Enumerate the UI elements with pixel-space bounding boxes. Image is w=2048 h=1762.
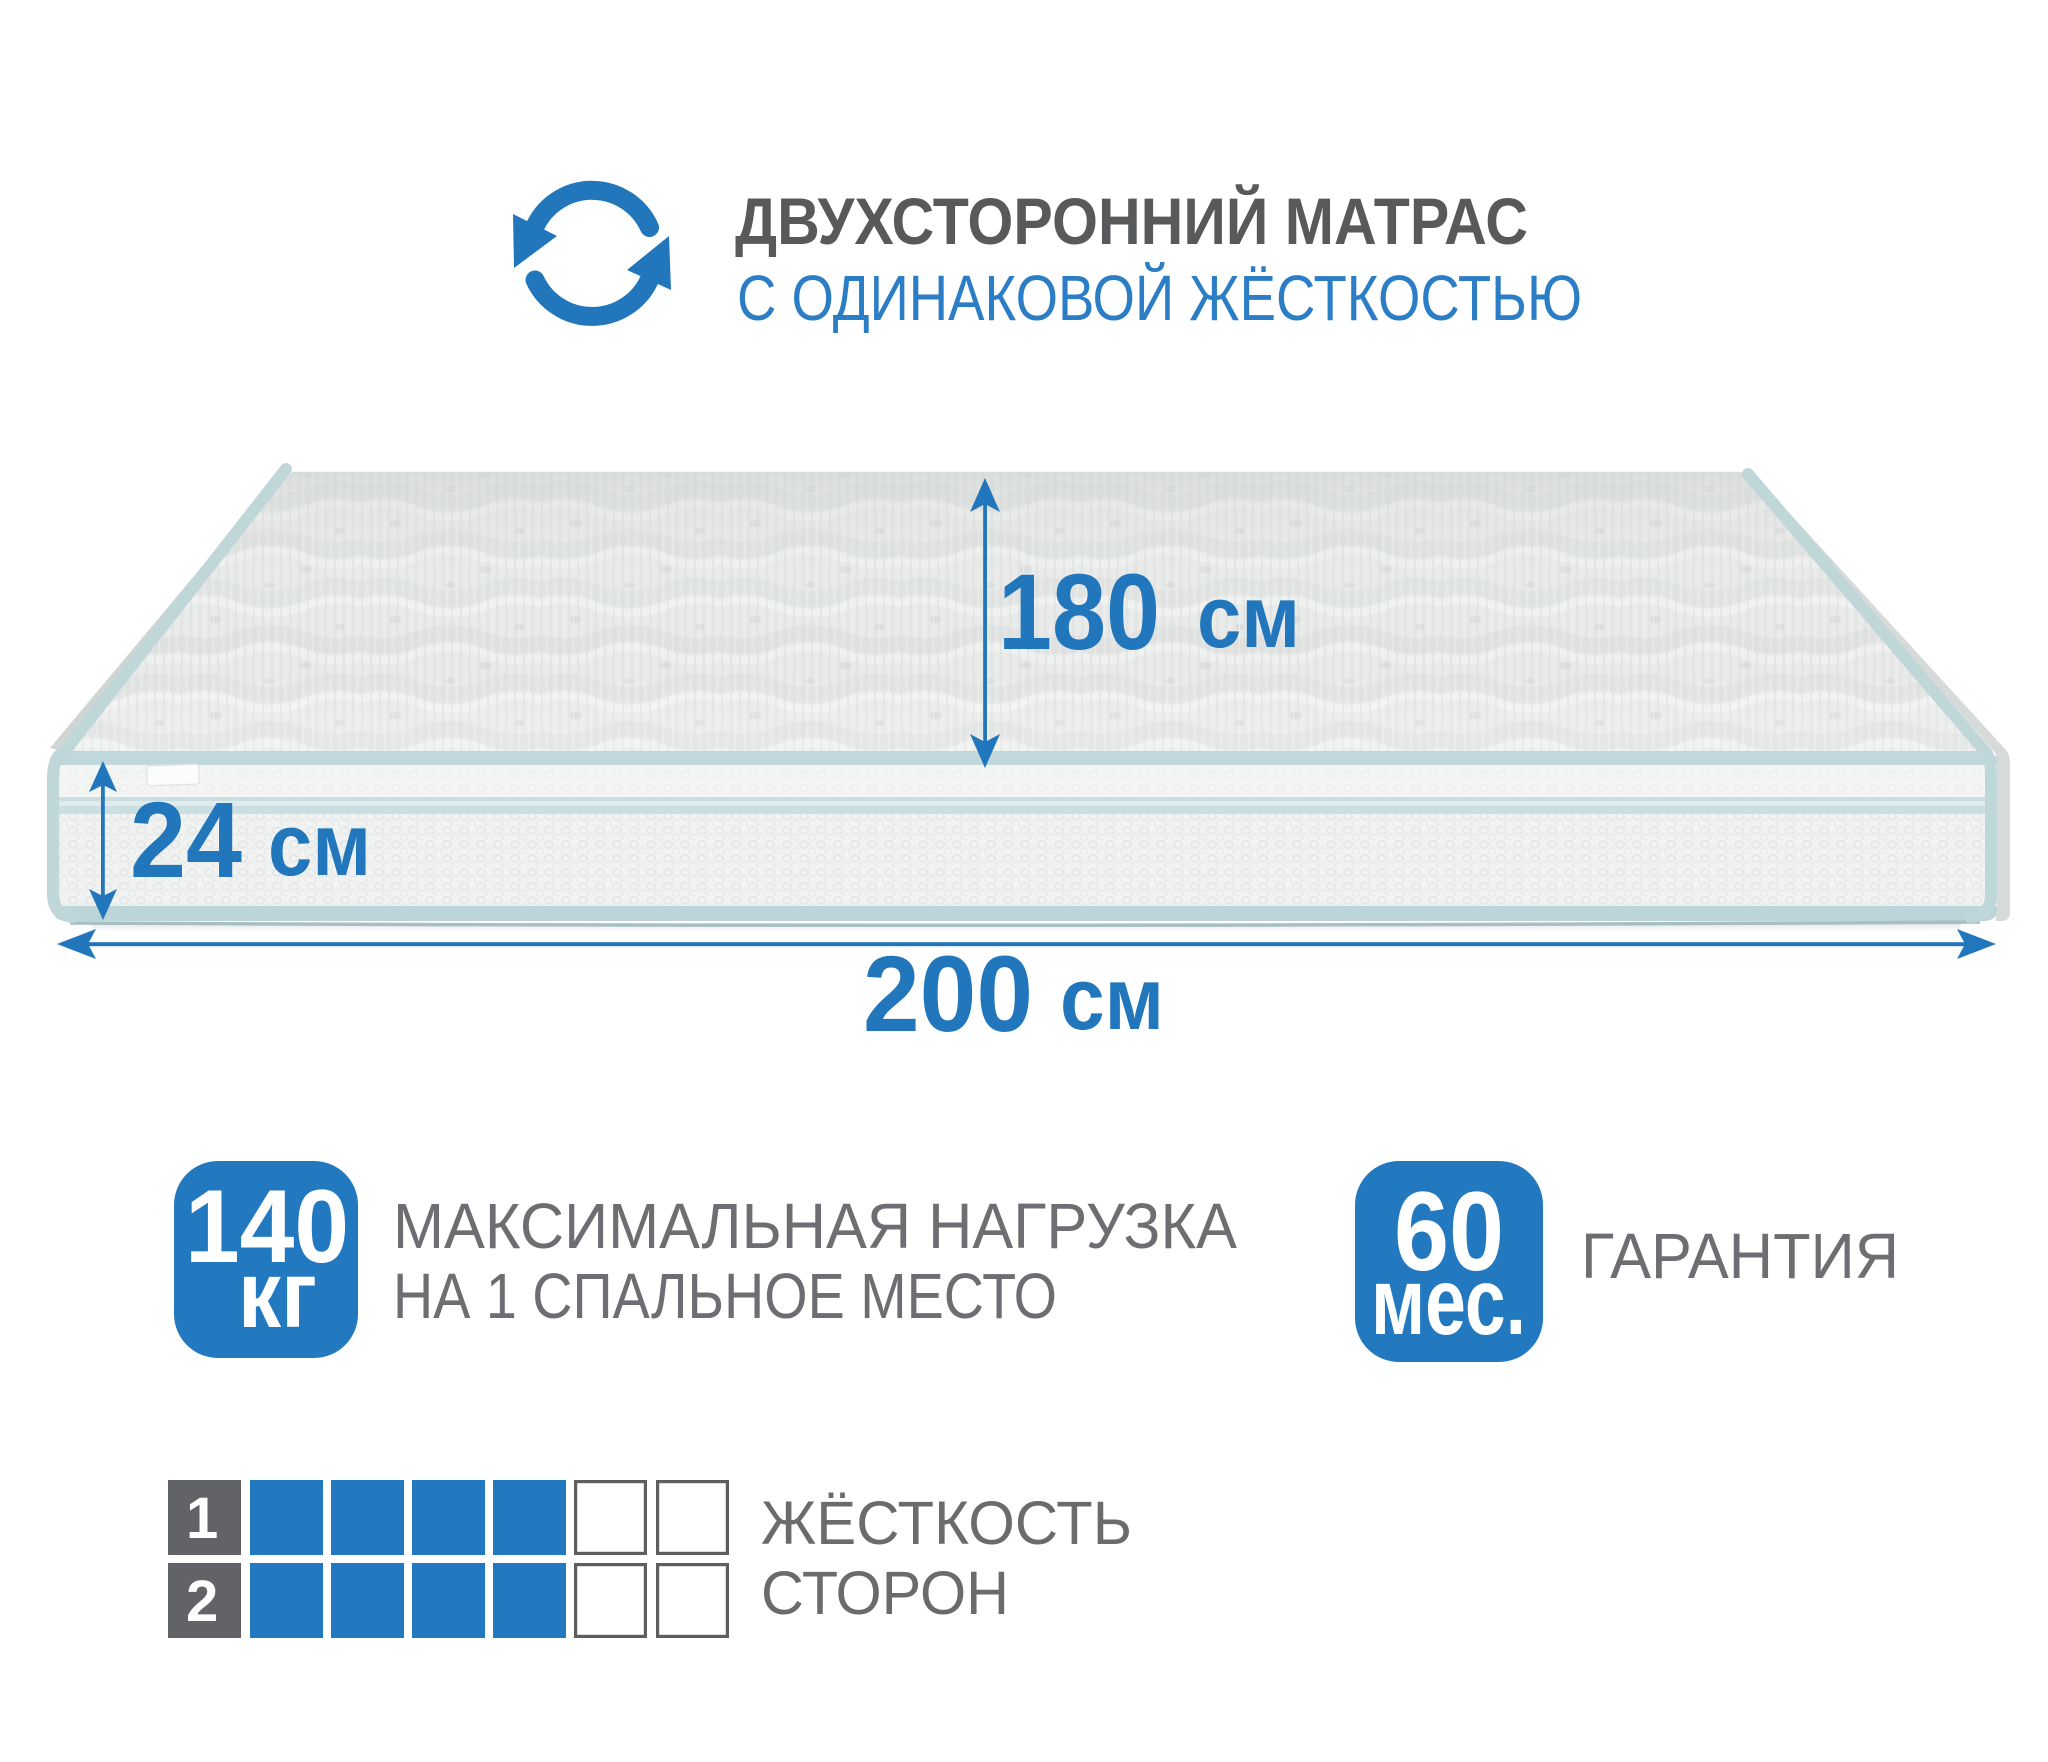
svg-text:200: 200 [863, 933, 1033, 1054]
svg-text:2: 2 [186, 1569, 218, 1634]
svg-text:ЖЁСТКОСТЬ: ЖЁСТКОСТЬ [761, 1489, 1132, 1557]
svg-text:ДВУХСТОРОННИЙ МАТРАС: ДВУХСТОРОННИЙ МАТРАС [735, 183, 1528, 258]
svg-text:ГАРАНТИЯ: ГАРАНТИЯ [1581, 1220, 1899, 1292]
svg-text:см: см [1197, 567, 1300, 666]
svg-text:см: см [268, 795, 371, 894]
svg-text:МАКСИМАЛЬНАЯ НАГРУЗКА: МАКСИМАЛЬНАЯ НАГРУЗКА [393, 1190, 1237, 1262]
svg-text:1: 1 [186, 1486, 218, 1551]
svg-text:СТОРОН: СТОРОН [761, 1559, 1009, 1627]
svg-text:24: 24 [130, 779, 242, 900]
svg-text:С ОДИНАКОВОЙ ЖЁСТКОСТЬЮ: С ОДИНАКОВОЙ ЖЁСТКОСТЬЮ [737, 261, 1582, 334]
svg-text:см: см [1060, 949, 1164, 1048]
svg-text:НА 1 СПАЛЬНОЕ МЕСТО: НА 1 СПАЛЬНОЕ МЕСТО [393, 1260, 1057, 1332]
svg-text:мес.: мес. [1371, 1249, 1526, 1355]
svg-text:кг: кг [238, 1242, 317, 1348]
svg-text:180: 180 [998, 551, 1160, 672]
